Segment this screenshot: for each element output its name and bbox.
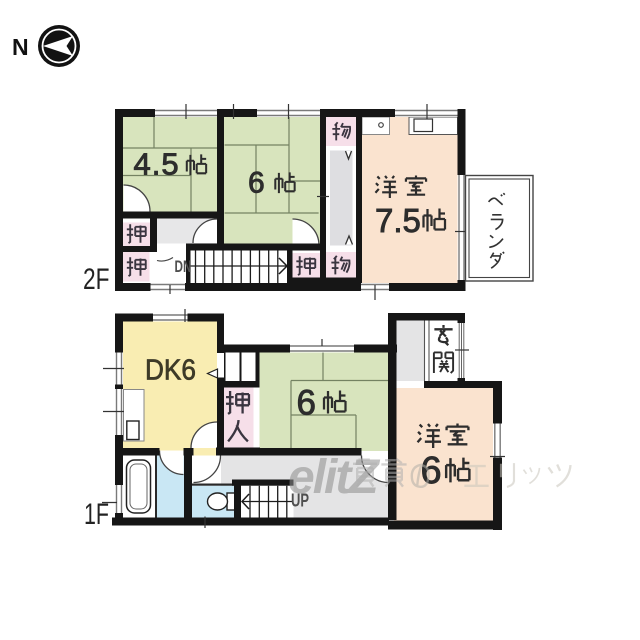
svg-text:N: N (12, 34, 29, 60)
svg-text:6: 6 (297, 384, 316, 423)
svg-text:6: 6 (248, 167, 265, 200)
svg-text:7.5: 7.5 (375, 202, 421, 239)
svg-text:4.5: 4.5 (134, 147, 180, 182)
svg-text:DN: DN (175, 257, 192, 276)
svg-text:2F: 2F (83, 263, 110, 296)
svg-text:DK6: DK6 (145, 355, 196, 387)
